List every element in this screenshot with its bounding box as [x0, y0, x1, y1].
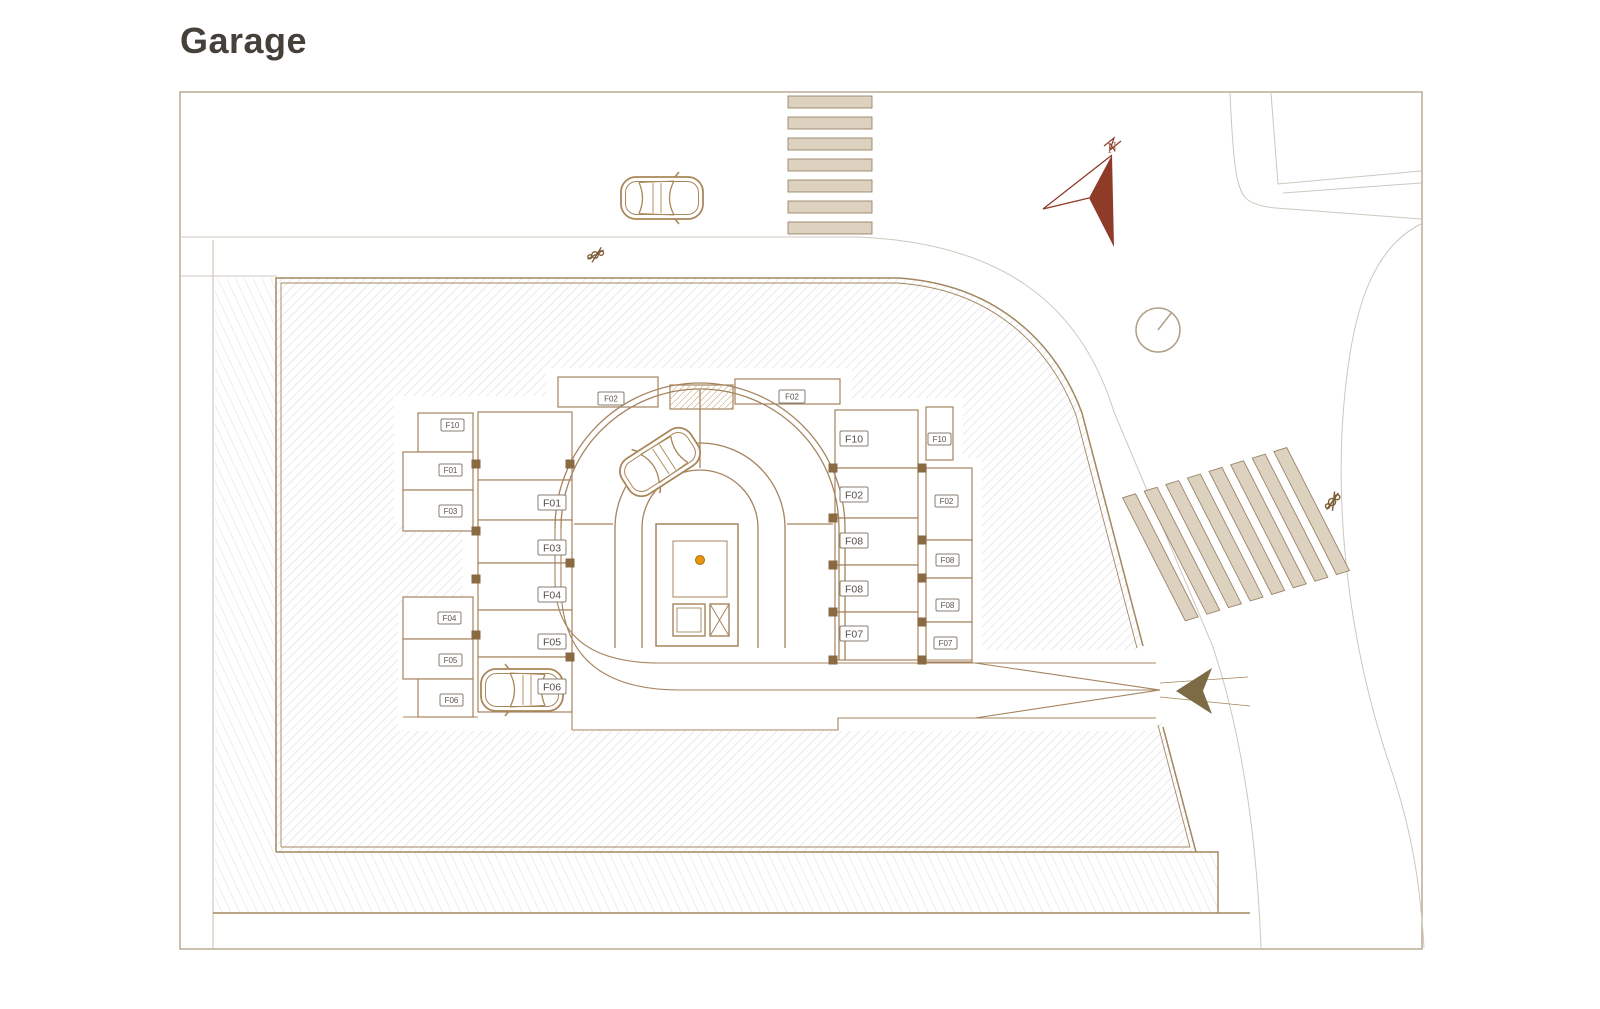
- svg-text:F01: F01: [444, 466, 458, 475]
- stall-label: F02: [779, 390, 805, 403]
- stall-label: F10: [840, 431, 868, 446]
- stall-column-left-inner: [478, 412, 572, 712]
- svg-text:F10: F10: [933, 435, 947, 444]
- svg-text:F08: F08: [941, 601, 955, 610]
- svg-text:F04: F04: [543, 590, 561, 602]
- stall-label: F05: [439, 654, 462, 666]
- stall-label: F06: [538, 679, 566, 694]
- stall-label: F07: [840, 626, 868, 641]
- svg-text:F01: F01: [543, 498, 561, 510]
- svg-text:F02: F02: [785, 393, 799, 402]
- stall-label: F05: [538, 634, 566, 649]
- car-on-street: [621, 172, 703, 224]
- stall-label: F10: [441, 419, 464, 431]
- stall-label: F02: [840, 487, 868, 502]
- svg-text:F08: F08: [845, 536, 863, 548]
- svg-text:F07: F07: [939, 639, 953, 648]
- svg-text:F08: F08: [941, 556, 955, 565]
- stall-label: F08: [936, 554, 959, 566]
- svg-text:F06: F06: [543, 682, 561, 694]
- stall-label: F04: [538, 587, 566, 602]
- svg-text:F06: F06: [445, 696, 459, 705]
- svg-text:F02: F02: [940, 497, 954, 506]
- stall-label: F02: [935, 495, 958, 507]
- crosswalk-top: [788, 96, 872, 234]
- stall-label: F04: [438, 612, 461, 624]
- stall-label: F03: [439, 505, 462, 517]
- svg-text:F05: F05: [543, 637, 561, 649]
- svg-text:F03: F03: [543, 543, 561, 555]
- core: [656, 524, 738, 646]
- svg-text:F10: F10: [446, 421, 460, 430]
- svg-text:F02: F02: [845, 490, 863, 502]
- site-plan: N F10 F01 F03 F04 F05 F06 F01 F03 F04 F0…: [0, 0, 1600, 1009]
- garage-plan-page: Garage: [0, 0, 1600, 1009]
- svg-text:F02: F02: [604, 395, 618, 404]
- svg-text:F05: F05: [444, 656, 458, 665]
- svg-text:F08: F08: [845, 584, 863, 596]
- svg-text:F04: F04: [443, 614, 457, 623]
- column-marker-dot: [696, 556, 705, 565]
- stall-label: F08: [840, 533, 868, 548]
- stall-label: F08: [936, 599, 959, 611]
- svg-text:F03: F03: [444, 507, 458, 516]
- stall-label: F01: [538, 495, 566, 510]
- stall-label: F03: [538, 540, 566, 555]
- svg-text:F10: F10: [845, 434, 863, 446]
- stall-label: F10: [928, 433, 951, 445]
- stall-label: F08: [840, 581, 868, 596]
- stall-label: F06: [440, 694, 463, 706]
- stall-label: F07: [934, 637, 957, 649]
- stall-label: F01: [439, 464, 462, 476]
- stall-label: F02: [598, 392, 624, 405]
- svg-text:F07: F07: [845, 629, 863, 641]
